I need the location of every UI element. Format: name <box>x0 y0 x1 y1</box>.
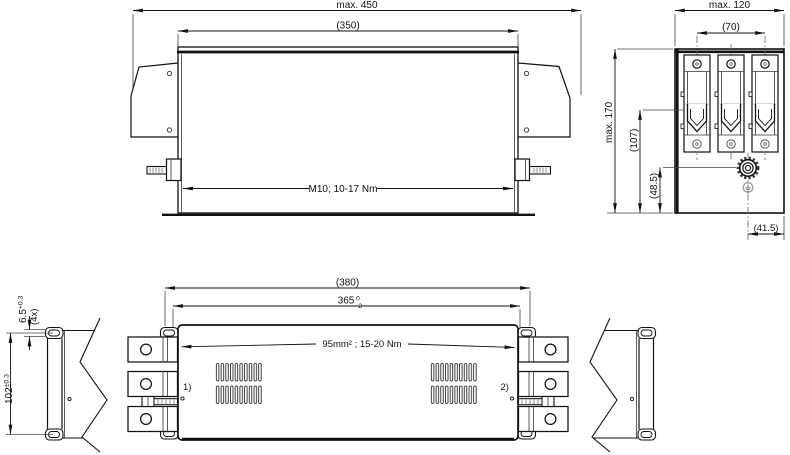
front-body-width-text: (350) <box>336 21 359 32</box>
terminal-block-2 <box>715 55 744 152</box>
top-view: (380) 365 0 -2 <box>4 278 656 453</box>
terminal-block-3 <box>749 55 778 152</box>
left-break-line <box>80 318 107 452</box>
ref-mark-1: 1) <box>183 382 191 393</box>
front-body-width-dimension: (350) <box>178 21 518 48</box>
left-m10-stud <box>147 159 181 181</box>
side-height-text: max. 170 <box>604 101 615 143</box>
front-overall-width-text: max. 450 <box>336 0 378 11</box>
terminal-block-1 <box>681 55 710 152</box>
mounting-length-tol-lower: -2 <box>356 303 362 310</box>
side-depth-text: max. 120 <box>709 0 751 11</box>
slot-pitch-text: 102±0.3 <box>4 374 16 404</box>
side-view: max. 120 (70) <box>604 0 784 240</box>
slot-count-text: (4x) <box>29 309 40 325</box>
right-break-line <box>590 318 617 452</box>
slot-pitch-dimension: 102±0.3 <box>4 333 54 435</box>
terminal-height-text: (107) <box>629 129 640 152</box>
terminal-pitch-text: (70) <box>722 22 740 33</box>
overall-length-text: (380) <box>336 278 359 289</box>
mounting-length-tol-upper: 0 <box>356 296 360 303</box>
mounting-length-dimension: 365 0 -2 <box>173 296 520 330</box>
slot-width-dimension: 6.5+0.3 (4x) <box>18 295 46 350</box>
technical-drawing-page: max. 450 (350) <box>0 0 790 455</box>
ref-mark-2: 2) <box>501 382 509 393</box>
stud-height-text: (48.5) <box>649 173 660 199</box>
terminal-pitch-dimension: (70) <box>697 22 765 33</box>
ground-symbol <box>743 183 753 193</box>
filter-dimension-drawing: max. 450 (350) <box>0 0 790 455</box>
left-terminal-cover-flap <box>131 63 178 137</box>
stud-torque-text: M10; 10-17 Nm <box>309 184 378 195</box>
ref-dot-2 <box>510 397 513 400</box>
right-terminal-lugs <box>519 337 569 432</box>
front-view: max. 450 (350) <box>131 0 581 215</box>
lug-torque-text: 95mm² ; 15-20 Nm <box>322 339 401 350</box>
left-mounting-bracket <box>46 318 108 452</box>
slot-width-text: 6.5+0.3 <box>18 295 30 323</box>
left-terminal-lugs <box>128 337 178 432</box>
mounting-length-text: 365 <box>338 296 355 307</box>
right-mounting-bracket <box>590 318 656 452</box>
ref-dot-1 <box>181 397 184 400</box>
stud-offset-text: (41.5) <box>754 223 779 234</box>
right-terminal-cover-flap <box>518 63 570 137</box>
stud-offset-dimension: (41.5) <box>748 216 784 240</box>
right-m10-stud <box>515 159 551 181</box>
